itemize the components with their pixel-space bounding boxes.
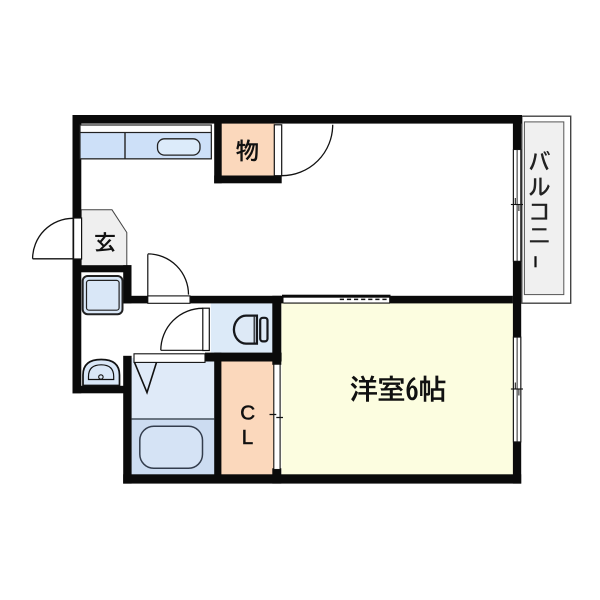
svg-text:C: C bbox=[240, 402, 255, 425]
svg-text:L: L bbox=[242, 426, 253, 449]
